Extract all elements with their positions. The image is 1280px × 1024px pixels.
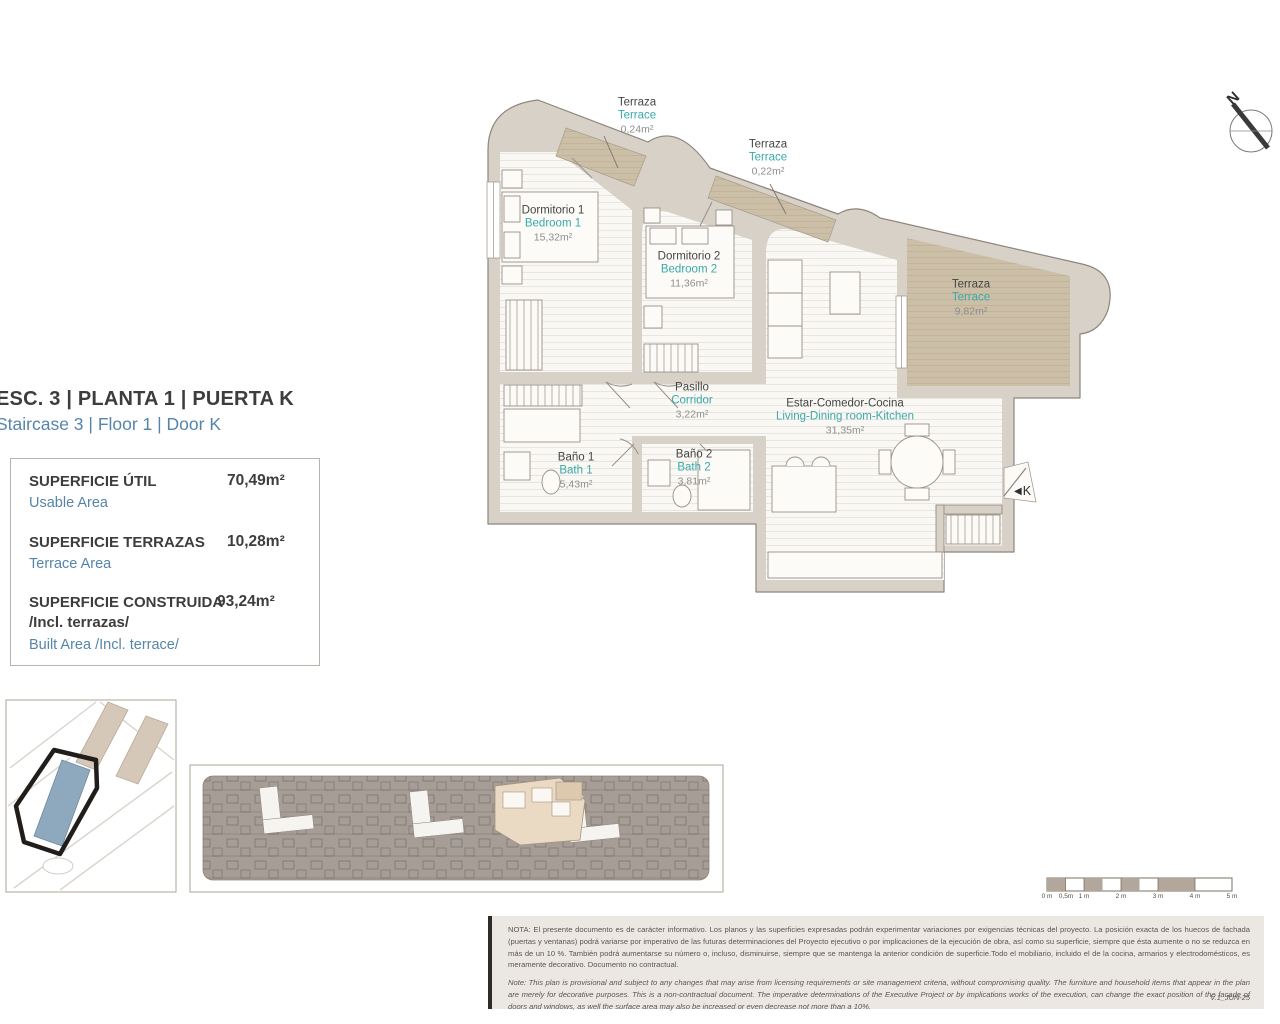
north-compass	[1230, 104, 1272, 152]
wardrobe2	[644, 344, 698, 372]
entrance-marker: ◀K	[1014, 484, 1032, 498]
room-label-terrace-main: Terraza Terrace 9,82m²	[952, 279, 990, 318]
floor-plan-sheet: ESC. 3 | PLANTA 1 | PUERTA K Staircase 3…	[0, 0, 1280, 1024]
kitchen-island	[772, 466, 836, 512]
dining-table	[891, 436, 943, 488]
row-value: 10,28m²	[227, 533, 285, 551]
nightstand	[644, 208, 660, 223]
bath1-closet	[504, 385, 582, 406]
sink2	[648, 460, 670, 486]
scale-tick-label: 4 m	[1190, 893, 1201, 900]
kitchen-counter	[768, 552, 942, 578]
entrance-door-letter: K	[1023, 484, 1032, 498]
entry-closet	[946, 515, 1000, 544]
site-plan	[6, 700, 176, 892]
scale-tick-label: 3 m	[1153, 893, 1164, 900]
row-label-en: Built Area /Incl. terrace/	[29, 635, 295, 655]
row-label-en: Usable Area	[29, 493, 295, 513]
row-label-en: Terrace Area	[29, 554, 295, 574]
sink1	[504, 452, 530, 480]
room-label-corridor: Pasillo Corridor 3,22m²	[671, 382, 713, 421]
nightstand	[716, 210, 732, 225]
scale-tick-label: 2 m	[1116, 893, 1127, 900]
scale-tick-label: 0,5m	[1059, 893, 1073, 900]
row-label-es-sub: /Incl. terrazas/	[29, 613, 295, 633]
scale-bar	[1047, 878, 1232, 891]
chair	[879, 450, 891, 474]
row-value: 93,24m²	[217, 593, 275, 611]
chair	[943, 450, 955, 474]
sofa	[768, 260, 802, 358]
area-summary-table: SUPERFICIE ÚTIL Usable Area 70,49m² SUPE…	[10, 458, 320, 666]
toilet2	[673, 485, 691, 507]
room-label-living: Estar-Comedor-Cocina Living-Dining room-…	[776, 398, 914, 437]
page-title: ESC. 3 | PLANTA 1 | PUERTA K	[0, 388, 326, 411]
entrance-direction-icon: ◀	[1014, 486, 1023, 497]
plan-header: ESC. 3 | PLANTA 1 | PUERTA K Staircase 3…	[0, 388, 326, 435]
room-label-bedroom-2: Dormitorio 2 Bedroom 2 11,36m²	[658, 251, 721, 290]
table-row: SUPERFICIE TERRAZAS Terrace Area 10,28m²	[29, 533, 295, 575]
note-english: Note: This plan is provisional and subje…	[508, 977, 1250, 1012]
bathtub1	[504, 409, 580, 442]
scale-tick-label: 0 m	[1042, 893, 1053, 900]
tv-cabinet	[830, 272, 860, 314]
scale-tick-label: 5 m	[1227, 893, 1238, 900]
legal-note: NOTA: El presente documento es de caráct…	[488, 916, 1264, 1009]
room-label-bath-1: Baño 1 Bath 1 5,43m²	[558, 452, 594, 491]
apartment-plan	[487, 100, 1110, 592]
room-label-bedroom-1: Dormitorio 1 Bedroom 1 15,32m²	[522, 205, 585, 244]
table-row: SUPERFICIE ÚTIL Usable Area 70,49m²	[29, 472, 295, 514]
note-spanish: NOTA: El presente documento es de caráct…	[508, 924, 1250, 971]
strip-highlighted-unit	[495, 778, 585, 845]
page-subtitle: Staircase 3 | Floor 1 | Door K	[0, 414, 326, 435]
table-row: SUPERFICIE CONSTRUIDA /Incl. terrazas/ B…	[29, 593, 295, 655]
nightstand	[502, 266, 522, 284]
plan-version: V.1_JUN-25	[1210, 993, 1250, 1002]
room-label-terrace-2: Terraza Terrace 0,22m²	[749, 139, 787, 178]
wardrobe1	[506, 300, 542, 370]
nightstand	[502, 170, 522, 188]
row-value: 70,49m²	[227, 472, 285, 490]
room-label-bath-2: Baño 2 Bath 2 3,81m²	[676, 449, 712, 488]
room-label-terrace-1: Terraza Terrace 0,24m²	[618, 97, 656, 136]
floor-strip-overview	[190, 765, 723, 892]
chair	[905, 488, 929, 500]
scale-tick-label: 1 m	[1079, 893, 1090, 900]
desk2	[644, 306, 662, 328]
